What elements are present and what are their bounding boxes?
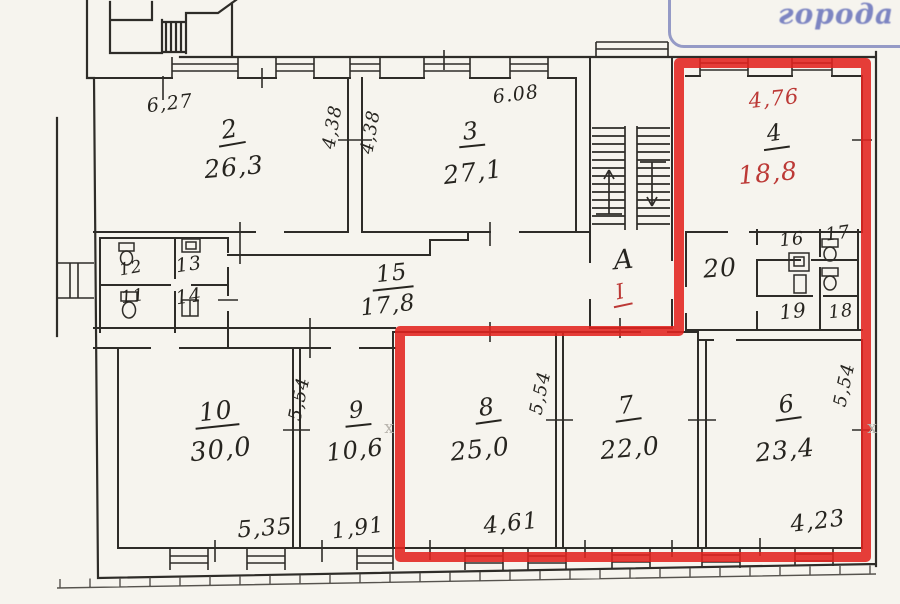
room-19-number: 19 [778,300,807,323]
room-16-number: 16 [779,230,806,251]
room-12-number: 12 [118,259,144,280]
staircase [592,126,670,230]
room-11-number: 11 [120,287,146,307]
staircase-letter: А [612,246,636,275]
room-4-width-dim: 4,76 [748,86,801,112]
dim-room8-bottom: 4,61 [482,510,539,539]
room-17-number: 17 [824,223,851,244]
room-7-number: 7 [612,391,642,422]
windows [57,42,833,570]
room-4-area: 18,8 [737,158,799,188]
room-6-number: 6 [772,390,802,421]
watermark-mark: х [384,418,394,438]
watermark-mark: х [867,418,877,438]
stamp-text: города [778,0,894,31]
dim-room10-bottom: 5,35 [237,516,294,543]
room-3-number: 3 [456,118,485,149]
room-6-area: 23,4 [754,434,816,465]
room-18-number: 18 [828,302,855,323]
room-15-area: 17,8 [359,292,416,321]
room-9-area: 10,6 [325,435,385,465]
room-4-number: 4 [760,121,789,151]
room-14-number: 14 [175,286,204,308]
room-2-number: 2 [214,114,246,147]
room-15-number: 15 [370,260,414,291]
room-13-number: 13 [175,254,204,276]
room-8-number: 8 [472,393,502,424]
room-9-number: 9 [343,398,371,428]
room-10-number: 10 [193,396,240,429]
room-2-area: 26,3 [203,152,265,182]
room-3-area: 27,1 [442,156,504,188]
room-10-area: 30,0 [189,434,253,466]
floorplan-page: города х х 6,27 2 26,3 4,38 4,38 6.08 3 … [0,0,900,604]
room-8-area: 25,0 [449,433,511,464]
room-7-area: 22,0 [599,433,661,463]
room-20-number: 20 [702,254,737,281]
